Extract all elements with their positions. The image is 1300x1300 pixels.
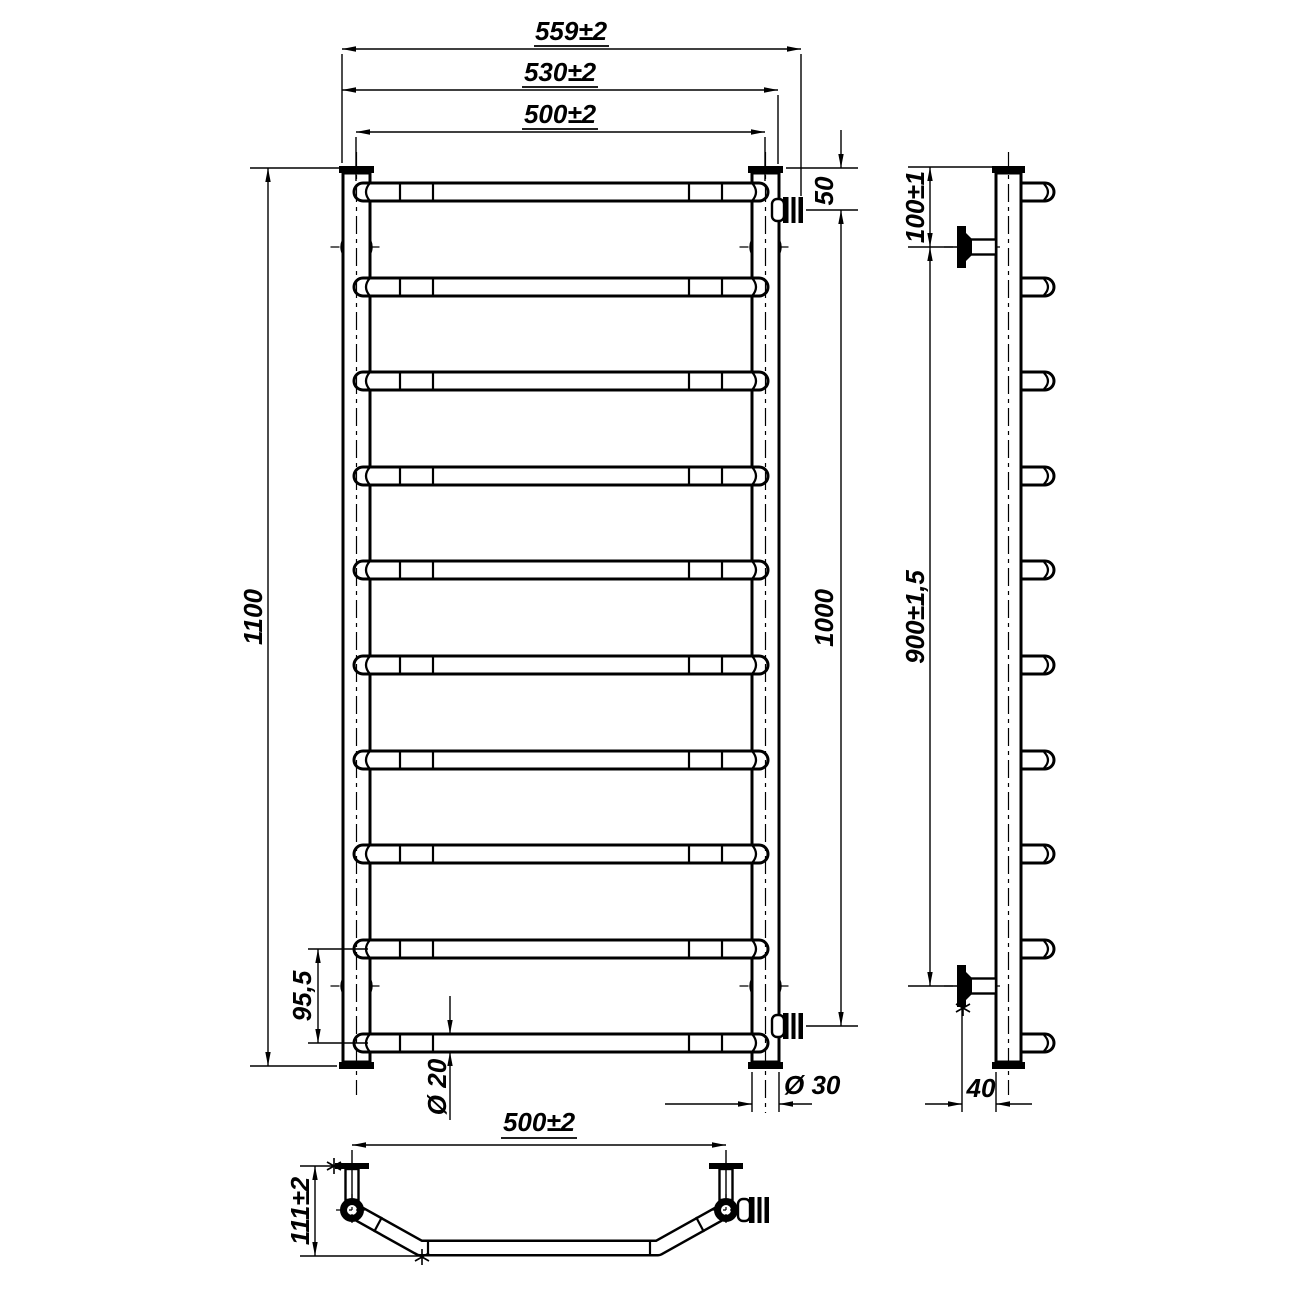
dim-bracket-spacing: 900±1,5 <box>900 570 930 664</box>
dim-total-height: 1100 <box>238 589 268 645</box>
dim-top-to-connector: 50 <box>809 176 839 205</box>
dim-pipe-outer-width: 530±2 <box>524 57 597 87</box>
dim-pipe-diameter: Ø 30 <box>784 1070 841 1100</box>
technical-drawing-page: 559±2 530±2 500±2 50 1000 1100 95,5 <box>0 0 1300 1300</box>
dim-rung-diameter: Ø 20 <box>422 1058 452 1115</box>
bottom-connector-valve <box>772 1013 803 1039</box>
dim-overall-width: 559±2 <box>535 16 608 46</box>
dim-top-to-bracket: 100±1 <box>900 171 930 243</box>
dim-wall-offset: 40 <box>966 1073 996 1103</box>
bottom-view-connector-valve <box>738 1197 769 1223</box>
dim-bottom-rung-spacing: 95,5 <box>287 970 317 1021</box>
dim-depth: 111±2 <box>285 1176 315 1245</box>
dim-rung-length: 500±2 <box>524 99 597 129</box>
dim-mounting-width: 500±2 <box>503 1107 576 1137</box>
dim-connector-spacing: 1000 <box>809 589 839 647</box>
top-connector-valve <box>772 197 803 223</box>
towel-rail-drawing: 559±2 530±2 500±2 50 1000 1100 95,5 <box>0 0 1300 1300</box>
